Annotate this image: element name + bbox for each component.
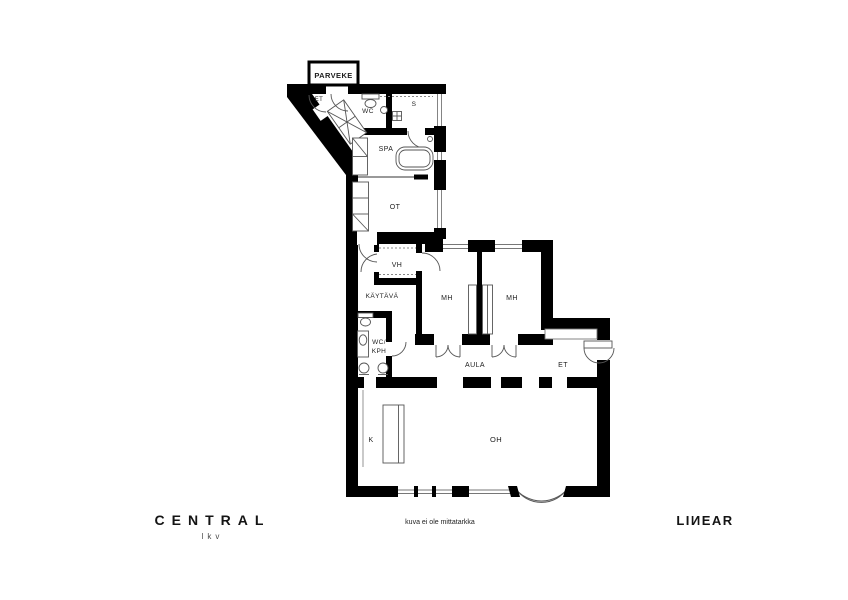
room-label-spa: SPA — [379, 146, 394, 153]
bathtub-icon — [396, 147, 433, 170]
walls — [287, 84, 610, 497]
floor-plan-page: PARVEKE ET WC S SPA OT VH KÄYTÄVÄ MH MH … — [0, 0, 848, 600]
wardrobe-spa — [353, 138, 368, 175]
floor-drain-icon — [428, 137, 433, 142]
room-label-mh2: MH — [506, 295, 518, 302]
washer-icon — [359, 363, 369, 375]
room-label-vh: VH — [392, 262, 403, 269]
toilet-icon — [361, 318, 371, 326]
room-label-et-upper: ET — [315, 97, 323, 103]
wardrobe-ot — [353, 182, 369, 231]
floor-plan-canvas: PARVEKE ET WC S SPA OT VH KÄYTÄVÄ MH MH … — [0, 0, 848, 600]
room-label-ot: OT — [390, 204, 401, 211]
kitchen-island — [383, 405, 404, 463]
room-label-kaytava: KÄYTÄVÄ — [366, 292, 399, 300]
room-label-oh: OH — [490, 435, 502, 444]
toilet-icon — [365, 100, 376, 108]
room-label-sauna: S — [412, 101, 417, 108]
toilet-tank-icon — [358, 313, 373, 318]
brand-central-sub: lkv — [140, 532, 285, 541]
brand-central: CENTRAL lkv — [140, 512, 285, 541]
room-label-wckph-2: KPH — [372, 348, 387, 355]
room-label-wckph-1: WC/ — [372, 339, 386, 346]
room-label-aula: AULA — [465, 362, 485, 369]
room-label-k: K — [368, 437, 373, 444]
fixtures — [353, 94, 493, 467]
toilet-tank-icon — [362, 94, 379, 99]
disclaimer-text: kuva ei ole mittatarkka — [340, 519, 540, 526]
room-label-mh1: MH — [441, 295, 453, 302]
washbasin-icon — [359, 335, 367, 345]
brand-linear: LIИEAR — [660, 513, 750, 528]
room-label-et: ET — [558, 362, 568, 369]
room-label-parveke: PARVEKE — [314, 71, 352, 80]
sink-icon — [381, 107, 388, 114]
sauna-stove-icon — [393, 112, 402, 121]
room-label-wc: WC — [362, 108, 374, 115]
brand-central-name: CENTRAL — [140, 512, 285, 528]
wardrobe-mh1 — [469, 285, 477, 334]
